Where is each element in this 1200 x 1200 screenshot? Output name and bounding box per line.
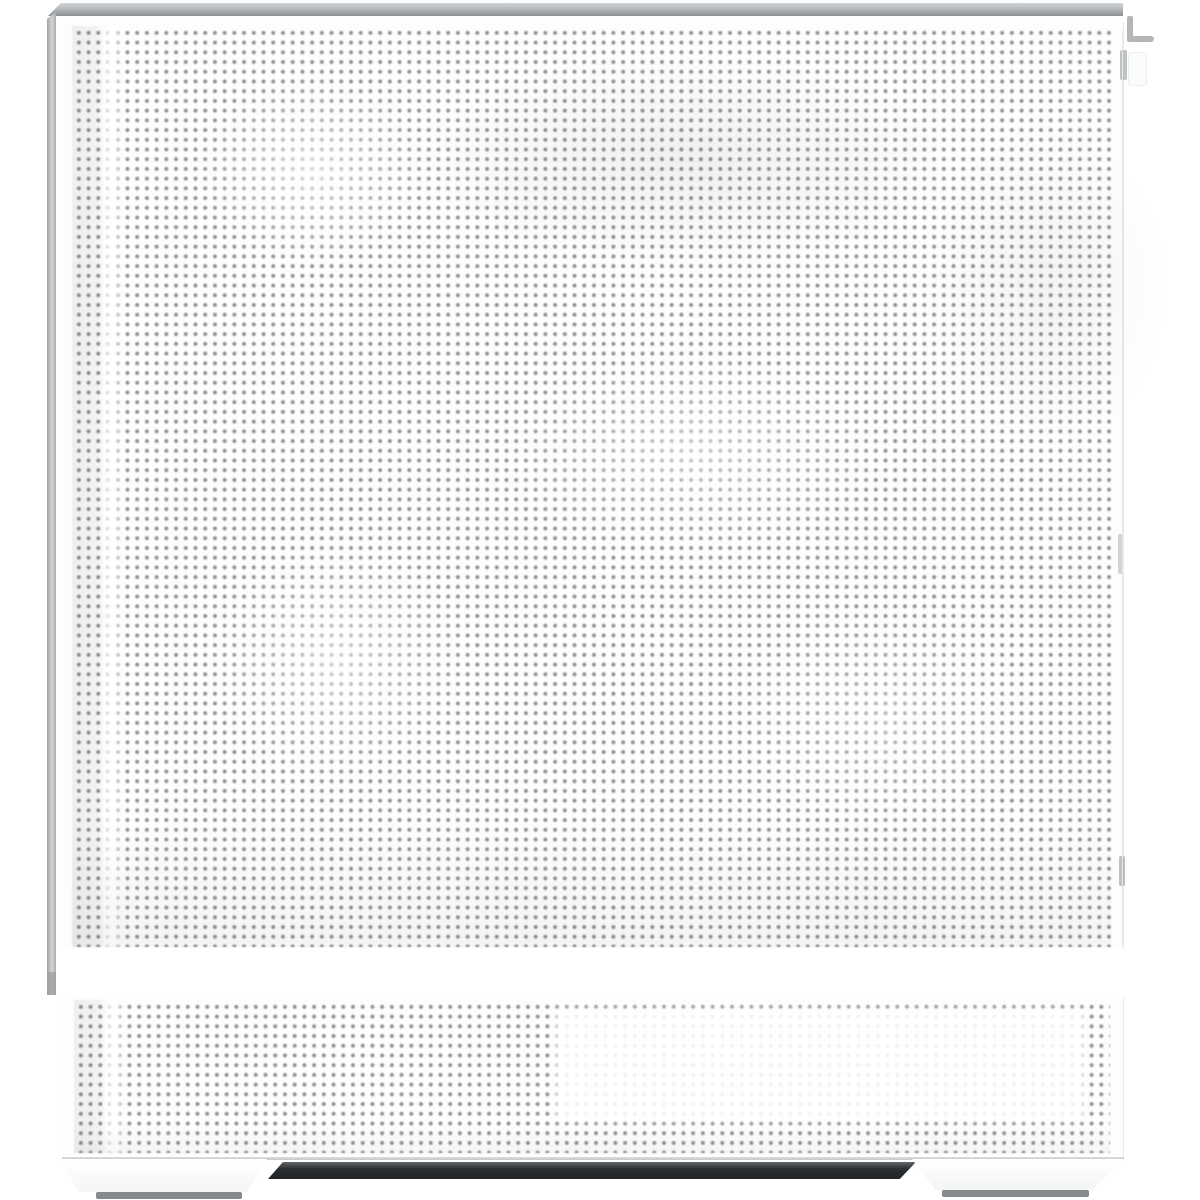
- main-mesh-panel: [62, 22, 1124, 948]
- mesh-left-shade: [72, 26, 106, 947]
- mesh-left-shade: [74, 1000, 108, 1153]
- right-foot-pad: [942, 1190, 1089, 1197]
- bottom-mesh-panel: [62, 998, 1124, 1156]
- panel-rear-edge-line: [1122, 30, 1123, 945]
- psu-area-highlight: [558, 1012, 1082, 1118]
- left-case-foot: [60, 1159, 267, 1192]
- mesh-reflection-highlight: [162, 496, 512, 826]
- right-case-foot: [912, 1159, 1124, 1190]
- mesh-shade-right: [892, 86, 1200, 486]
- latch-hook-horizontal: [1130, 36, 1154, 42]
- mesh-perforation-pattern: [72, 26, 1111, 947]
- mesh-reflection-highlight: [157, 44, 467, 299]
- latch-tab-ghost: [1128, 52, 1147, 86]
- case-left-rail-end: [47, 972, 56, 995]
- product-image-canvas: [0, 0, 1200, 1200]
- mesh-left-highlight-stripe: [102, 26, 122, 947]
- mesh-perforation-pattern: [74, 1000, 1110, 1153]
- mesh-left-highlight-stripe: [104, 1000, 124, 1153]
- case-left-rail: [47, 12, 56, 995]
- mesh-reflection-highlight: [432, 316, 952, 586]
- left-foot-pad: [96, 1192, 242, 1199]
- mesh-shade-bottom: [74, 1123, 1110, 1153]
- mesh-shade-bottom: [72, 817, 1111, 947]
- case-top-rail: [48, 3, 1123, 16]
- mesh-reflection-highlight: [672, 566, 1092, 876]
- mesh-shade-top: [352, 26, 1012, 296]
- bottom-recess-strip: [268, 1162, 916, 1179]
